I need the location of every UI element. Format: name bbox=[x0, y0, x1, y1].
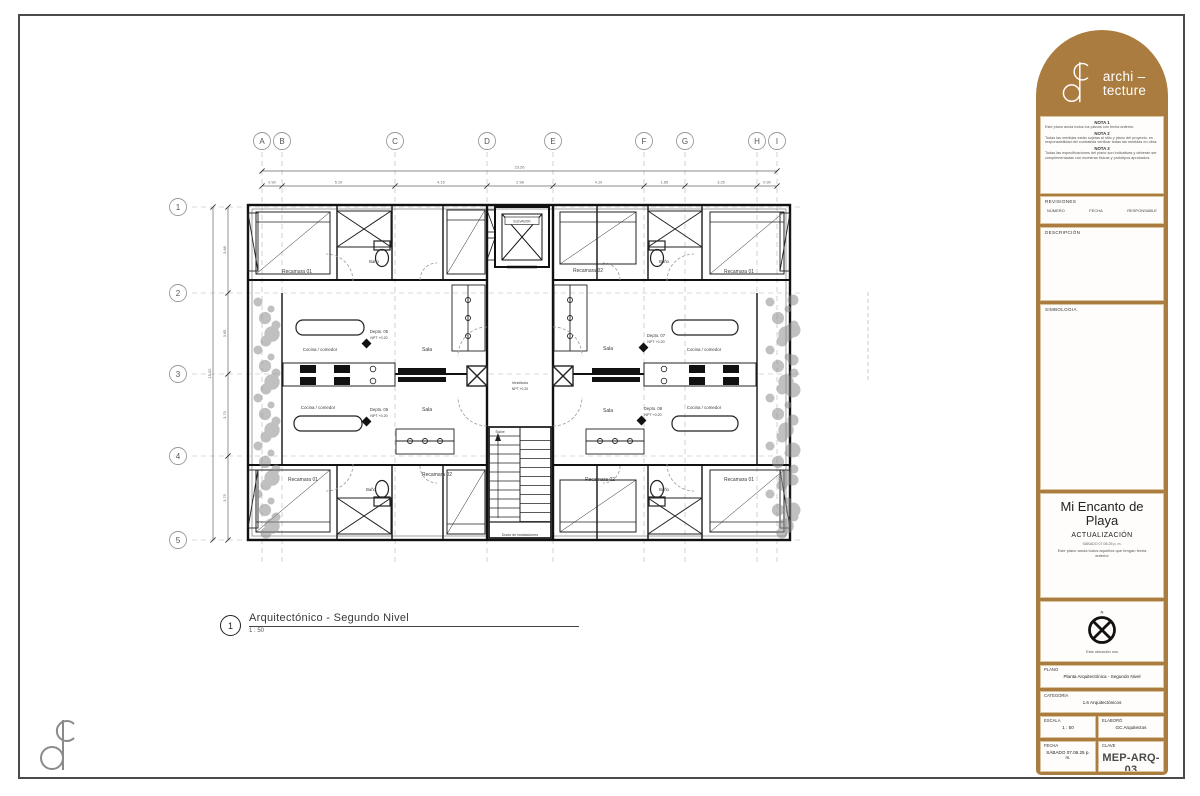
symbology-title: SIMBOLOGIA bbox=[1045, 307, 1159, 312]
escala-label: ESCALA bbox=[1044, 718, 1092, 723]
plan-label: Recamara 02 bbox=[422, 472, 452, 478]
project-panel: Mi Encanto de Playa ACTUALIZACIÓN SÁBADO… bbox=[1040, 493, 1164, 598]
grid-bubble-label: D bbox=[484, 137, 490, 146]
plan-label: Recamara 01 bbox=[724, 269, 754, 275]
dim-segment: 1.85 bbox=[661, 181, 668, 185]
revisions-col-numero: NÚMERO bbox=[1047, 208, 1065, 213]
north-panel: N Esta ubicación nos bbox=[1040, 601, 1164, 662]
grid-bubble-label: F bbox=[642, 137, 647, 146]
revisions-title: REVISIONES bbox=[1045, 199, 1159, 204]
plan-label: Baño bbox=[366, 487, 376, 492]
elaboro-value: GC Arquitectos bbox=[1102, 725, 1160, 730]
plano-field: PLANO Planta Arquitectónica - Segundo Ni… bbox=[1040, 665, 1164, 688]
plan-label: Baño bbox=[659, 487, 669, 492]
caption-rule bbox=[249, 626, 579, 627]
notes-panel: NOTA 1 Este plano anula todos los planos… bbox=[1040, 116, 1164, 194]
caption-number: 1 bbox=[220, 615, 241, 636]
fecha-label: FECHA bbox=[1044, 743, 1092, 748]
floor-plan-svg: ABCDEFGHI12345 bbox=[0, 0, 1035, 796]
clave-field: CLAVE MEP-ARQ-03 bbox=[1098, 741, 1164, 772]
plan-label: ELEVADOR bbox=[513, 220, 531, 224]
plan-label: NPT +0.20 bbox=[370, 336, 387, 340]
dim-segment: 3.88 bbox=[223, 246, 227, 253]
grid-bubble-label: C bbox=[392, 137, 398, 146]
plan-label: Depto. 08 bbox=[644, 406, 663, 411]
project-name: Mi Encanto de Playa bbox=[1045, 500, 1159, 529]
categoria-value: 1.6 Arquitectónicos bbox=[1044, 700, 1160, 705]
dim-segment: 3.79 bbox=[223, 494, 227, 501]
plano-value: Planta Arquitectónica - Segundo Nivel bbox=[1044, 674, 1160, 679]
grid-bubble-label: 4 bbox=[176, 452, 181, 461]
plan-label: Recamara 02 bbox=[573, 268, 603, 274]
grid-bubble-label: I bbox=[776, 137, 778, 146]
plan-label: Ducto de instalaciones bbox=[502, 533, 538, 537]
plan-label: NPT +0.20 bbox=[370, 414, 387, 418]
description-panel: DESCRIPCIÓN bbox=[1040, 227, 1164, 301]
escala-field: ESCALA 1 : 50 bbox=[1040, 716, 1096, 738]
elevator bbox=[487, 207, 549, 267]
description-title: DESCRIPCIÓN bbox=[1045, 230, 1159, 235]
grid-bubble-label: E bbox=[550, 137, 555, 146]
plan-label: Baño bbox=[659, 259, 669, 264]
clave-label: CLAVE bbox=[1102, 743, 1160, 748]
plan-label: Sube bbox=[495, 429, 505, 434]
note-body: Todas las medidas están sujetas al sitio… bbox=[1045, 136, 1159, 145]
grid-bubble-label: G bbox=[682, 137, 688, 146]
plan-label: Recamara 01 bbox=[282, 269, 312, 275]
grid-bubble-label: B bbox=[279, 137, 284, 146]
plan-label: Cocina / comedor bbox=[301, 405, 336, 410]
note-body: Este plano anula todos los planos con fe… bbox=[1045, 125, 1159, 130]
dc-monogram-logo bbox=[30, 712, 90, 776]
revisions-col-fecha: FECHA bbox=[1089, 208, 1103, 213]
categoria-field: CATEGORIA 1.6 Arquitectónicos bbox=[1040, 691, 1164, 713]
escala-value: 1 : 50 bbox=[1044, 725, 1092, 730]
brand-wordmark: archi – tecture bbox=[1103, 70, 1146, 98]
symbology-panel: SIMBOLOGIA bbox=[1040, 304, 1164, 490]
north-caption: Esta ubicación nos bbox=[1086, 650, 1118, 654]
dim-segment: 2.98 bbox=[516, 181, 523, 185]
north-arrow-icon: N bbox=[1085, 609, 1119, 647]
revisions-panel: REVISIONES NÚMERO FECHA RESPONSABLE bbox=[1040, 196, 1164, 224]
dim-segment: 3.70 bbox=[223, 411, 227, 418]
plan-label: Baño bbox=[369, 259, 379, 264]
note-body: Todas las especificaciones del plano son… bbox=[1045, 151, 1159, 160]
plan-label: Vestíbulo bbox=[512, 380, 529, 385]
scale-author-row: ESCALA 1 : 50 ELABORÓ GC Arquitectos bbox=[1040, 716, 1164, 738]
revisions-col-responsable: RESPONSABLE bbox=[1127, 208, 1157, 213]
plan-label: Sala bbox=[422, 407, 432, 413]
dim-segment: 0.90 bbox=[268, 181, 275, 185]
elaboro-field: ELABORÓ GC Arquitectos bbox=[1098, 716, 1164, 738]
plan-label: NPT +0.20 bbox=[644, 413, 661, 417]
project-note: Este plano anula todos aquellos que teng… bbox=[1045, 548, 1159, 558]
plan-label: Cocina / comedor bbox=[687, 347, 722, 352]
plano-label: PLANO bbox=[1044, 667, 1160, 672]
plan-label: Sala bbox=[422, 347, 432, 353]
categoria-label: CATEGORIA bbox=[1044, 693, 1160, 698]
dim-segment: 5.10 bbox=[335, 181, 342, 185]
fecha-value: SÁBADO 07.06.25 p. m. bbox=[1044, 750, 1092, 760]
dim-segment: 4.15 bbox=[437, 181, 444, 185]
plan-label: Recamara 02 bbox=[585, 477, 615, 483]
dim-segment: 3.25 bbox=[717, 181, 724, 185]
dim-segment: 4.10 bbox=[595, 181, 602, 185]
plan-caption: 1 Arquitectónico - Segundo Nivel 1 : 50 bbox=[220, 612, 579, 636]
plan-label: Depto. 05 bbox=[370, 329, 389, 334]
dim-total: 23.26 bbox=[514, 165, 525, 170]
plan-label: Recamara 01 bbox=[724, 477, 754, 483]
plan-label: Depto. 06 bbox=[370, 407, 389, 412]
dim-segment: 3.65 bbox=[223, 330, 227, 337]
plan-label: Cocina / comedor bbox=[687, 405, 722, 410]
grid-bubble-label: 5 bbox=[176, 536, 181, 545]
plan-label: Sala bbox=[603, 408, 613, 414]
caption-title: Arquitectónico - Segundo Nivel bbox=[249, 612, 579, 624]
plan-label: Sala bbox=[603, 346, 613, 352]
plan-label: Cocina / comedor bbox=[303, 347, 338, 352]
dim-segment: 0.90 bbox=[763, 181, 770, 185]
grid-bubble-label: 1 bbox=[176, 203, 181, 212]
elaboro-label: ELABORÓ bbox=[1102, 718, 1160, 723]
title-block: archi – tecture NOTA 1 Este plano anula … bbox=[1036, 30, 1168, 775]
brand-monogram-icon bbox=[1058, 56, 1098, 112]
plan-label: NPT +0.20 bbox=[647, 340, 664, 344]
sheet-number: MEP-ARQ-03 bbox=[1102, 752, 1160, 772]
project-subtitle: ACTUALIZACIÓN bbox=[1045, 532, 1159, 539]
project-date: SÁBADO 07.06.25 p. m. bbox=[1045, 542, 1159, 546]
plan-label: NPT +0.20 bbox=[512, 387, 528, 391]
grid-bubble-label: H bbox=[754, 137, 760, 146]
drawing-sheet: ABCDEFGHI12345 bbox=[0, 0, 1200, 796]
plan-label: Recamara 01 bbox=[288, 477, 318, 483]
date-code-row: FECHA SÁBADO 07.06.25 p. m. CLAVE MEP-AR… bbox=[1040, 741, 1164, 772]
grid-bubble-label: A bbox=[259, 137, 265, 146]
grid-bubble-label: 2 bbox=[176, 289, 181, 298]
caption-scale: 1 : 50 bbox=[249, 628, 579, 634]
svg-text:N: N bbox=[1101, 610, 1104, 615]
grid-bubble-label: 3 bbox=[176, 370, 181, 379]
dim-total: 15.02 bbox=[207, 368, 212, 379]
plan-label: Depto. 07 bbox=[647, 333, 666, 338]
fecha-field: FECHA SÁBADO 07.06.25 p. m. bbox=[1040, 741, 1096, 772]
brand-header: archi – tecture bbox=[1036, 56, 1168, 112]
